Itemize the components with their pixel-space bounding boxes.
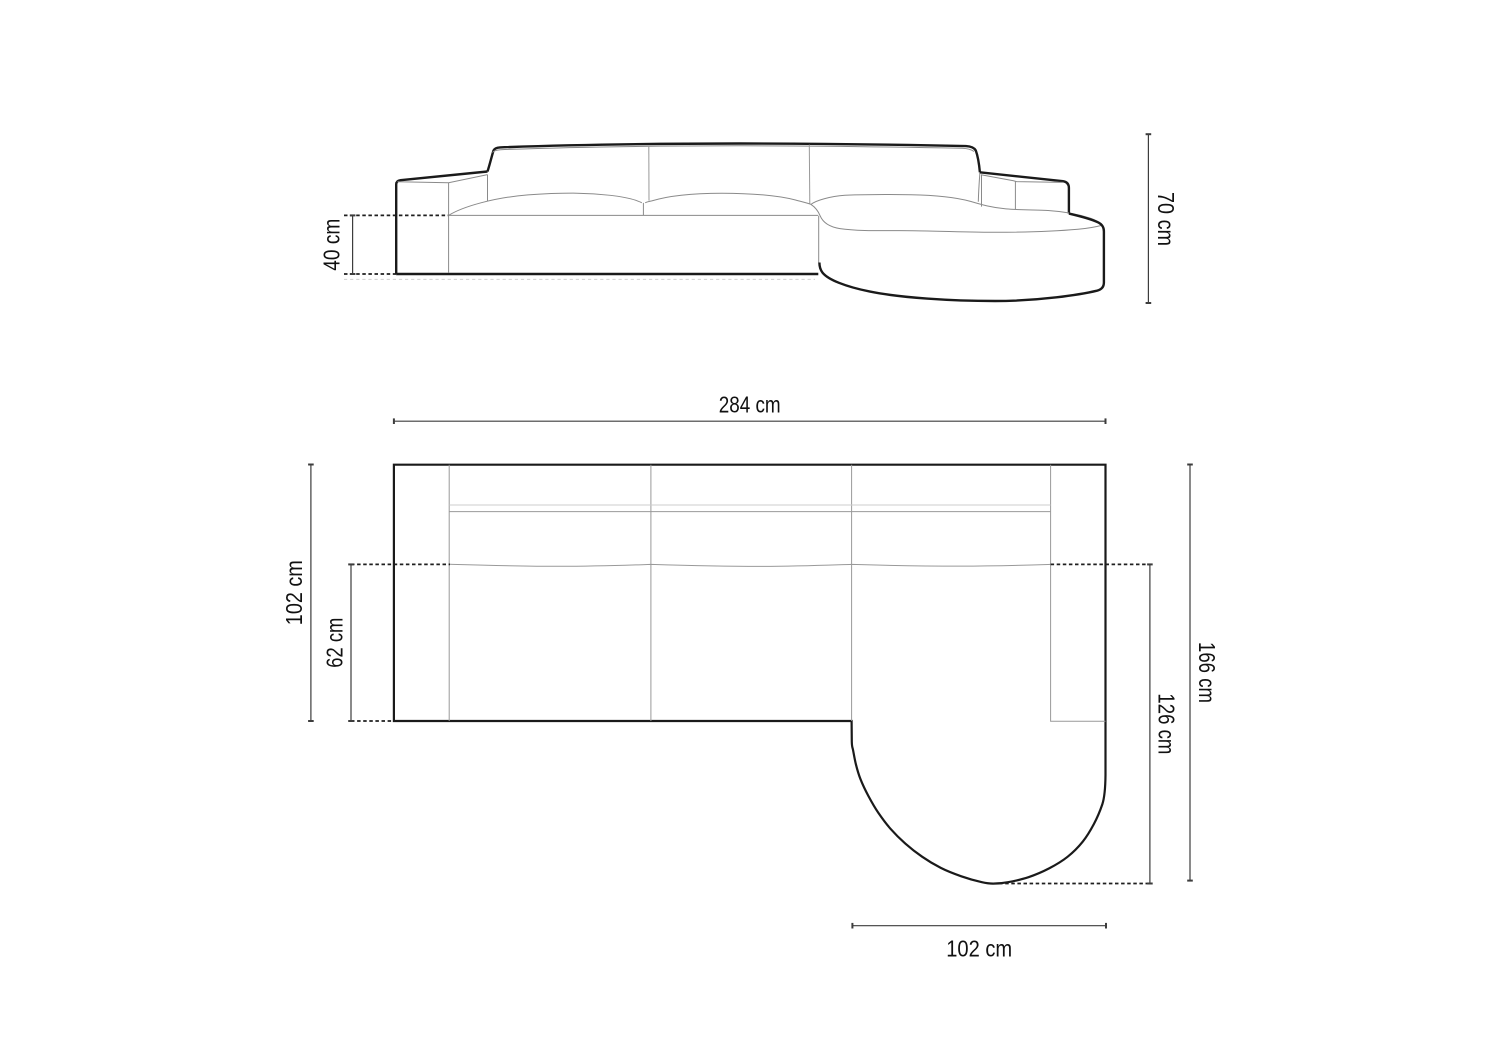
svg-text:102 cm: 102 cm [281, 560, 307, 625]
svg-text:102 cm: 102 cm [946, 935, 1012, 961]
svg-text:126 cm: 126 cm [1153, 693, 1179, 754]
svg-text:70 cm: 70 cm [1153, 192, 1179, 246]
svg-text:166 cm: 166 cm [1194, 642, 1220, 703]
svg-text:284 cm: 284 cm [719, 391, 781, 417]
svg-text:62 cm: 62 cm [322, 618, 348, 668]
svg-text:40 cm: 40 cm [319, 219, 345, 271]
